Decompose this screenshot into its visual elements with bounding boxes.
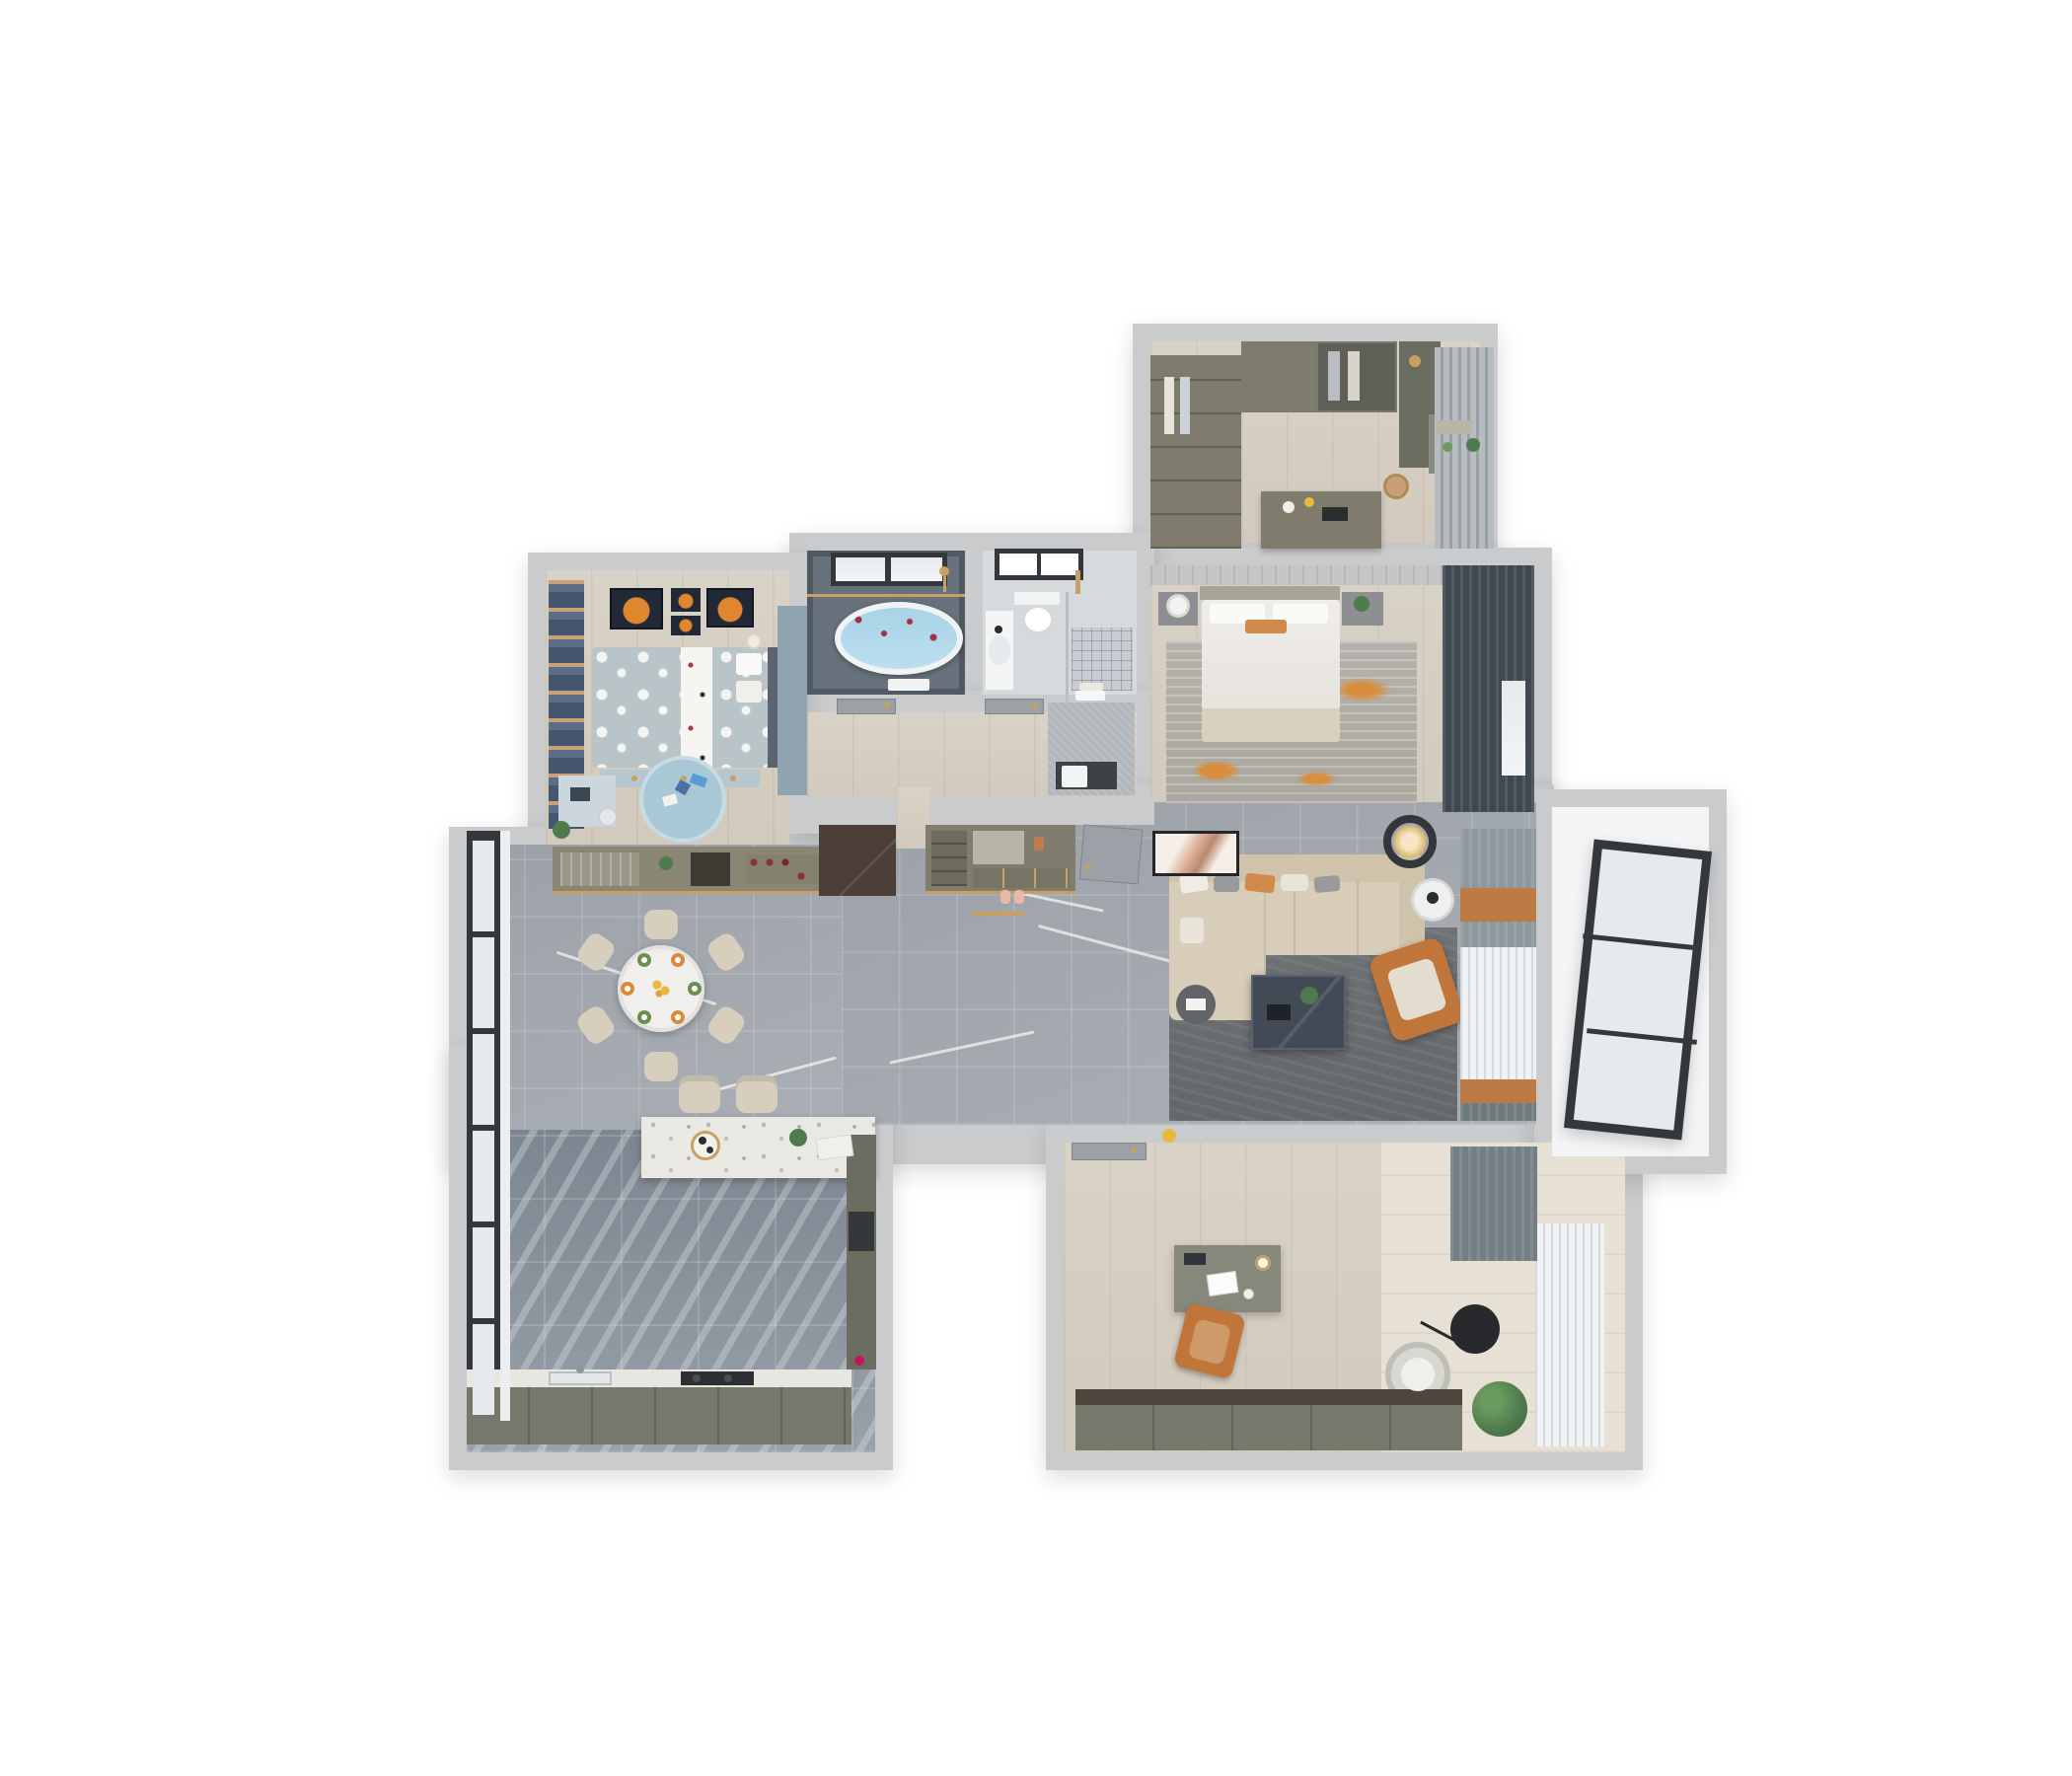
- chaise-pillow: [1180, 918, 1204, 943]
- desk-vase: [1283, 501, 1295, 513]
- counter-worktop: [467, 1369, 851, 1387]
- dining-chair: [644, 910, 678, 939]
- dining-chair: [644, 1052, 678, 1081]
- kids-laptop: [570, 787, 590, 801]
- dark-marble-accent-panel: [819, 825, 896, 896]
- door-handle: [1032, 703, 1038, 708]
- leaning-artwork: [1152, 831, 1239, 876]
- shower-floor: [1072, 628, 1133, 691]
- serving-tray: [691, 1131, 720, 1160]
- desk-tray: [1322, 507, 1348, 521]
- toilet-tank: [1014, 592, 1060, 605]
- sink-basin: [989, 635, 1010, 665]
- office-cabinet-top: [1075, 1389, 1462, 1405]
- place-setting: [671, 1010, 685, 1024]
- door-handle: [884, 703, 890, 708]
- place-setting: [637, 1010, 651, 1024]
- clothes-in-glass: [1328, 351, 1340, 401]
- flower-centerpiece: [651, 979, 671, 999]
- curtain-sheer: [1460, 947, 1536, 1079]
- throw-pillow-cream: [1281, 874, 1308, 891]
- yellow-kettle: [1162, 1129, 1176, 1143]
- tray-cup: [706, 1147, 713, 1153]
- bath-towel: [888, 679, 929, 691]
- office-dark-curtain: [1450, 1147, 1537, 1261]
- kids-wardrobe: [777, 606, 807, 795]
- planet-artwork-1: [610, 588, 663, 629]
- hanging-clothes: [1164, 377, 1174, 434]
- curtain-gray-green: [1460, 1103, 1536, 1121]
- gold-shower-rail: [807, 594, 965, 597]
- kids-desk-chair: [598, 807, 618, 827]
- place-setting: [671, 953, 685, 967]
- bar-stool: [679, 1075, 720, 1113]
- desk-island: [1261, 491, 1381, 549]
- place-setting: [621, 982, 634, 996]
- glass-rack-section: [560, 852, 639, 886]
- plant-on-dresser: [1466, 438, 1480, 452]
- coffee-table-tray: [1267, 1004, 1291, 1020]
- folded-towels: [1079, 683, 1103, 691]
- side-table-decor: [1427, 892, 1439, 904]
- shower-arm: [943, 576, 946, 592]
- hall-opening-floor: [896, 787, 929, 849]
- decor-vase: [1034, 837, 1044, 851]
- cabinet-drawers: [973, 868, 1070, 888]
- rattan-basket: [1383, 474, 1409, 499]
- bar-stool: [736, 1075, 777, 1113]
- coffee-machine: [691, 852, 730, 886]
- kitchen-sink: [549, 1371, 612, 1385]
- tray-cup: [699, 1137, 706, 1145]
- plant-on-dresser: [1443, 442, 1452, 452]
- wall-hall-foyer-left: [789, 797, 896, 825]
- bed-throw: [1202, 708, 1340, 742]
- coffee-table-plant: [1300, 987, 1318, 1004]
- ring-ceiling-light: [1383, 815, 1437, 868]
- counter-cabinets: [467, 1387, 851, 1444]
- folded-towels: [1075, 691, 1105, 701]
- book-on-table: [1186, 999, 1206, 1010]
- cabinet-plant: [659, 856, 673, 870]
- gold-shower-set: [1075, 570, 1080, 594]
- black-disc-table: [1450, 1304, 1500, 1354]
- bed-headboard: [1200, 586, 1340, 600]
- clothes-in-glass: [1348, 351, 1360, 401]
- curtain-orange: [1460, 1079, 1536, 1103]
- bath2-window-pane: [999, 554, 1037, 575]
- mirror-niche: [973, 831, 1024, 864]
- kids-pillow: [736, 681, 762, 703]
- place-setting: [688, 982, 702, 996]
- coffee-cup: [1243, 1289, 1254, 1299]
- throw-pillow-gray: [1313, 875, 1340, 893]
- laptop: [1207, 1271, 1239, 1296]
- kitchen-window-panes: [473, 837, 494, 1415]
- window-sill: [500, 831, 510, 1421]
- office-sheer-curtain: [1535, 1223, 1604, 1446]
- curtain-gray: [1460, 829, 1536, 888]
- mirror: [1437, 420, 1472, 434]
- oval-bathtub: [835, 602, 963, 675]
- built-in-oven: [849, 1212, 874, 1251]
- glass-partition: [1066, 592, 1069, 706]
- floor-plan-render: [0, 0, 2072, 1776]
- desk-flowers: [1304, 497, 1314, 507]
- burner: [693, 1374, 701, 1382]
- curtain-orange: [1460, 888, 1536, 922]
- washing-machine: [1062, 766, 1087, 787]
- gold-threshold: [972, 912, 1025, 916]
- island-plant: [789, 1129, 807, 1147]
- throw-pillow-orange: [1244, 872, 1276, 893]
- burner: [724, 1374, 732, 1382]
- orange-accent-pillow: [1245, 620, 1287, 633]
- throw-pillow-gray: [1214, 876, 1239, 892]
- planet-artwork-4: [706, 588, 754, 628]
- bath-window-pane: [836, 557, 885, 581]
- coffee-table: [1251, 975, 1346, 1050]
- bath2-window-pane: [1041, 554, 1078, 575]
- curtain-gray: [1460, 922, 1536, 947]
- shoe-shelves: [931, 831, 967, 886]
- office-door-handle: [1131, 1147, 1137, 1152]
- table-lamp: [1166, 594, 1190, 618]
- faucet: [576, 1366, 584, 1373]
- bench-handle: [631, 776, 637, 781]
- desk-book: [1184, 1253, 1206, 1265]
- master-window: [1502, 681, 1525, 776]
- nightstand-plant: [1354, 596, 1369, 612]
- hanging-clothes: [1180, 377, 1190, 434]
- tall-cabinet: [847, 1135, 876, 1369]
- lounge-cushion: [1401, 1358, 1435, 1391]
- headboard-wall-panel: [1150, 565, 1446, 585]
- desk-lamp: [1255, 1255, 1271, 1271]
- planet-artwork-3: [671, 616, 701, 635]
- bed-runner: [681, 647, 712, 768]
- entrance-door-handle: [1085, 864, 1091, 870]
- place-setting: [637, 953, 651, 967]
- bench-handle: [730, 776, 736, 781]
- shelf-bag: [1409, 355, 1421, 367]
- planet-artwork-2: [671, 588, 701, 612]
- sink-tap: [995, 626, 1002, 633]
- wine-bottles: [746, 854, 821, 884]
- kids-pillow: [736, 653, 762, 675]
- toilet-bowl: [1022, 605, 1054, 634]
- kids-plant: [553, 821, 570, 839]
- shower-head: [939, 566, 949, 576]
- round-play-rug: [639, 756, 726, 843]
- slipper: [1000, 890, 1010, 904]
- office-plant: [1472, 1381, 1527, 1437]
- red-flower: [854, 1356, 864, 1366]
- wall-hall-foyer-right: [927, 797, 1154, 825]
- bath-window-pane: [891, 557, 942, 581]
- teddy-bear: [746, 633, 762, 649]
- office-cabinet-front: [1075, 1405, 1462, 1450]
- slipper: [1014, 890, 1024, 904]
- entrance-door: [1079, 824, 1144, 884]
- bench-handle: [681, 776, 687, 781]
